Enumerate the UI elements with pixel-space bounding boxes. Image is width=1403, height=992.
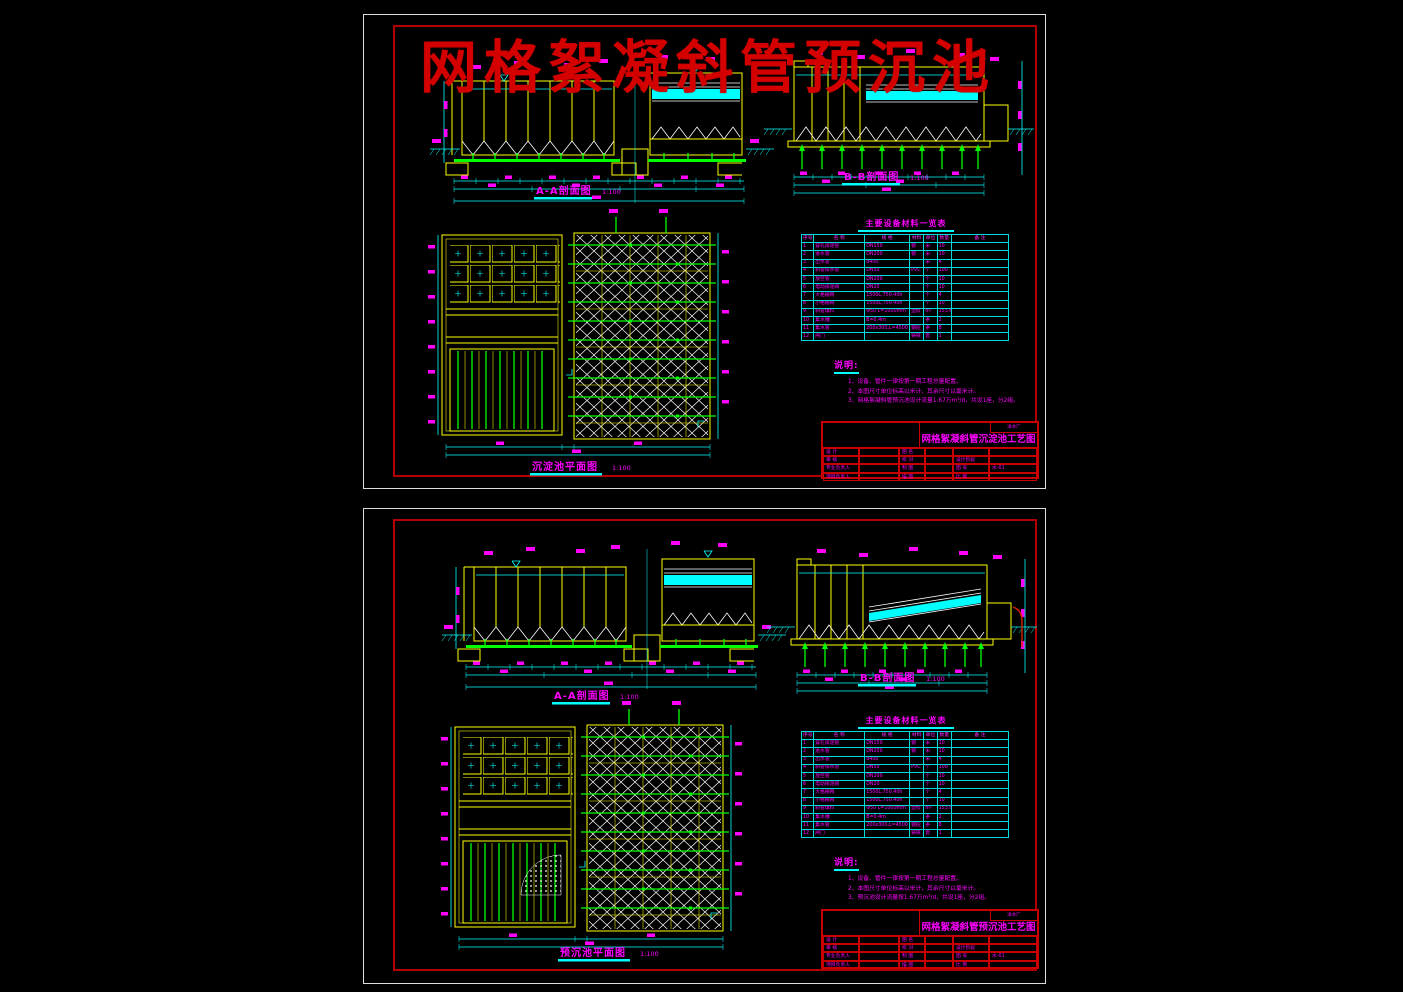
sheet1-section-bb-scale: 1:100 [910,174,929,182]
title-block-cell [859,456,899,464]
materials-table-header-row: 序号 名 称 规 格 材料 单位 数量 备 注 [802,235,1009,243]
sheet1-section-aa-label: A-A剖面图 [536,184,592,197]
title-block-cell [989,944,1037,952]
title-block-cell: 项目负责人 [823,961,859,969]
notes-title: 说明: [834,855,859,871]
sheet1-notes: 说明: 1、设备、管件一律按第一期工程总量配置。2、本图尺寸单位标高以米计，其余… [834,353,1019,407]
sheet2-section-bb-label: B-B剖面图 [860,671,915,684]
col-header: 备 注 [951,235,1008,243]
materials-table-row: 2进水管 DN200钢 米10 [802,251,1009,259]
drawing-title: 网格絮凝斜管沉淀池工艺图 [920,431,1037,445]
materials-table: 序号 名 称 规 格 材料 单位 数量 备 注 1穿孔排泥管 DN150钢 米1… [801,731,1009,838]
materials-table-row: 4斜管排水管 DN50PVC 个100 [802,267,1009,275]
title-block-cell: 制 图 [899,952,925,960]
title-block-cell [925,936,953,944]
title-block-cell: 审 核 [823,944,859,952]
sheet2-section-aa-label: A-A剖面图 [554,689,610,702]
materials-table-row: 2进水管 DN200钢 米10 [802,748,1009,756]
title-block-cell: 专业负责人 [823,464,859,472]
sheet1-section-bb-label: B-B剖面图 [844,170,899,183]
sheet2-section-aa-view [442,541,786,690]
title-block-cell: 设计阶段 [953,944,989,952]
sheet2-section-aa-scale: 1:100 [620,693,639,701]
title-block-cell: 比 例 [953,961,989,969]
materials-table-row: 6电动排泥阀 DN20 个10 [802,284,1009,292]
note-line: 3、网格絮凝斜管预沉池设计流量1.67万m³/d，共设1座，分2组。 [848,397,1019,407]
title-block-cell: 校 对 [899,944,925,952]
note-line: 1、设备、管件一律按第一期工程总量配置。 [848,875,990,885]
col-header: 单位 [924,235,937,243]
drawing-title: 网格絮凝斜管预沉池工艺图 [920,919,1037,933]
materials-table-row: 3出水管 d400 米4 [802,259,1009,267]
sheet1-plan-scale: 1:100 [612,464,631,472]
materials-table-row: 9斜管填料 Φ50 L=1000mm塑料 m²153.6 [802,308,1009,316]
title-block-cell: 比 例 [953,473,989,481]
sheet2-section-bb-band [869,589,1022,647]
title-block-cell: 水-01 [989,952,1037,960]
label-underline [552,702,610,705]
materials-table-row: 12闸门 铸铁 套1 [802,830,1009,838]
materials-table-row: 10集水槽 B=0.4m 条2 [802,316,1009,324]
materials-table-row: 10集水槽 B=0.4m 条2 [802,813,1009,821]
label-underline [558,959,630,962]
col-header: 名 称 [814,235,865,243]
title-block-cell [859,936,899,944]
materials-table-row: 7大格栅网 1500L,750.40h 个4 [802,292,1009,300]
sheet2-section-bb-scale: 1:100 [926,675,945,683]
title-block-cell [859,944,899,952]
col-header: 数量 [937,732,951,740]
note-line: 2、本图尺寸单位标高以米计，其余尺寸以毫米计。 [848,885,990,895]
sheet-2: A-A剖面图 1:100 B-B剖面图 1:100 预沉池平面图 1:100 主… [363,508,1046,984]
sheet1-materials-panel: 主要设备材料一览表 序号 名 称 规 格 材料 单位 数量 备 注 1穿孔排泥管… [801,218,1011,341]
materials-table: 序号 名 称 规 格 材料 单位 数量 备 注 1穿孔排泥管 DN150钢 米1… [801,234,1009,341]
materials-table-header-row: 序号 名 称 规 格 材料 单位 数量 备 注 [802,732,1009,740]
materials-table-row: 5放空管 DN200 个10 [802,772,1009,780]
title-block-cell: 描 图 [899,961,925,969]
sheet2-plan-view [441,701,742,950]
sheet2-materials-panel: 主要设备材料一览表 序号 名 称 规 格 材料 单位 数量 备 注 1穿孔排泥管… [801,715,1011,838]
materials-table-row: 9斜管填料 Φ50 L=1000mm塑料 m²153.6 [802,805,1009,813]
sheet2-title-block: 净水厂 网格絮凝斜管预沉池工艺图 设 计 图 名 审 核 校 对 设计阶段 专业 [821,909,1039,969]
note-line: 2、本图尺寸单位标高以米计，其余尺寸以毫米计。 [848,388,1019,398]
title-block-cell: 图 号 [953,952,989,960]
title-block-cell: 设 计 [823,448,859,456]
title-block-grid: 设 计 图 名 审 核 校 对 设计阶段 专业负责人 制 图 图 号 [823,448,1037,481]
label-underline [534,197,592,200]
col-header: 序号 [802,235,814,243]
title-block-cell [989,961,1037,969]
label-underline [842,183,900,186]
title-block-cell [859,448,899,456]
title-block-cell: 描 图 [899,473,925,481]
notes-title: 说明: [834,358,859,374]
title-block-grid: 设 计 图 名 审 核 校 对 设计阶段 专业负责人 制 图 图 号 [823,936,1037,969]
title-block-cell: 项目负责人 [823,473,859,481]
title-block-cell [925,944,953,952]
col-header: 材料 [910,235,924,243]
sheet1-plan-view [428,209,729,458]
title-block-cell [925,473,953,481]
materials-table-row: 12闸门 铸铁 套1 [802,333,1009,341]
col-header: 规 格 [865,732,910,740]
col-header: 序号 [802,732,814,740]
col-header: 材料 [910,732,924,740]
sheet2-section-bb-view [767,547,1037,694]
col-header: 名 称 [814,732,865,740]
title-block-cell [859,952,899,960]
title-block-cell [859,961,899,969]
title-block-cell [859,473,899,481]
materials-table-title: 主要设备材料一览表 [858,218,954,232]
col-header: 备 注 [951,732,1008,740]
materials-table-row: 11集水管 200x300,L=4500钢砼 条8 [802,822,1009,830]
materials-table-row: 4斜管排水管 DN50PVC 个100 [802,764,1009,772]
materials-table-row: 8小格栅网 1500L,750.40h 个10 [802,797,1009,805]
title-block-cell [989,936,1037,944]
title-block-cell [989,448,1037,456]
sheet1-plan-label: 沉淀池平面图 [532,460,598,473]
title-block-cell [989,473,1037,481]
title-block-cell: 图 名 [899,936,925,944]
title-block-cell: 校 对 [899,456,925,464]
label-underline [530,473,602,476]
materials-table-row: 1穿孔排泥管 DN150钢 米10 [802,740,1009,748]
title-block-cell [859,464,899,472]
col-header: 数量 [937,235,951,243]
title-block-cell: 设 计 [823,936,859,944]
title-block-cell [925,448,953,456]
title-block-cell: 审 核 [823,456,859,464]
title-block-cell: 专业负责人 [823,952,859,960]
col-header: 单位 [924,732,937,740]
sheet2-notes: 说明: 1、设备、管件一律按第一期工程总量配置。2、本图尺寸单位标高以米计，其余… [834,850,990,904]
title-block-cell [953,936,989,944]
title-block-cell: 图 名 [899,448,925,456]
title-block-cell: 图 号 [953,464,989,472]
materials-table-row: 11集水管 200x300,L=4500钢砼 条8 [802,325,1009,333]
title-block-cell [989,456,1037,464]
materials-table-title: 主要设备材料一览表 [858,715,954,729]
sheet1-title-block: 净水厂 网格絮凝斜管沉淀池工艺图 设 计 图 名 审 核 校 对 设计阶段 专业 [821,421,1039,479]
materials-table-row: 1穿孔排泥管 DN150钢 米10 [802,243,1009,251]
sheet1-section-aa-scale: 1:100 [602,188,621,196]
materials-table-row: 6电动排泥阀 DN20 个10 [802,781,1009,789]
watermark-title: 网格絮凝斜管预沉池 [420,22,996,104]
materials-table-row: 7大格栅网 1500L,750.40h 个4 [802,789,1009,797]
sheet2-plan-scale: 1:100 [640,950,659,958]
note-line: 3、预沉池设计流量按1.67万m³/d，共设1座，分2组。 [848,894,990,904]
note-line: 1、设备、管件一律按第一期工程总量配置。 [848,378,1019,388]
title-block-cell: 设计阶段 [953,456,989,464]
materials-table-row: 8小格栅网 1500L,750.40h 个10 [802,300,1009,308]
title-block-cell [925,456,953,464]
materials-table-row: 5放空管 DN200 个10 [802,275,1009,283]
title-block-cell [925,464,953,472]
label-underline [858,684,916,687]
title-block-cell [925,961,953,969]
title-block-cell: 水-01 [989,464,1037,472]
title-block-cell [953,448,989,456]
title-block-cell [925,952,953,960]
sheet2-plan-label: 预沉池平面图 [560,946,626,959]
materials-table-row: 3出水管 d400 米4 [802,756,1009,764]
col-header: 规 格 [865,235,910,243]
title-block-cell: 制 图 [899,464,925,472]
